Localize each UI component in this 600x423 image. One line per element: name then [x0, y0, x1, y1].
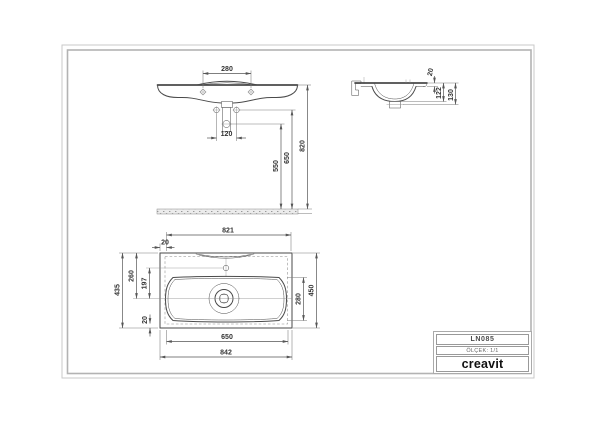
dim-label-550: 550 — [273, 160, 280, 172]
dim-plan-front-overhang: 20 — [142, 315, 150, 337]
dim-front-heights: 550 650 820 — [231, 85, 311, 209]
dim-label-130: 130 — [448, 89, 455, 101]
dim-plan-right-depth: 450 — [293, 253, 320, 328]
floor-hatch — [157, 209, 312, 214]
dim-label-20-bottom: 20 — [142, 316, 149, 324]
dim-label-280-front: 280 — [221, 66, 233, 73]
dim-label-435: 435 — [115, 284, 122, 296]
side-view: 20 122 130 — [352, 68, 459, 108]
dim-label-820: 820 — [300, 140, 307, 152]
technical-drawing-page: 280 120 550 650 820 — [0, 0, 600, 423]
dim-plan-basin-width: 650 — [167, 330, 289, 345]
title-block: LN085 ÖLÇEK: 1/1 creavit — [433, 331, 532, 374]
dim-label-450: 450 — [309, 285, 316, 297]
dim-plan-inner-width: 821 — [167, 228, 292, 252]
dim-label-20-top: 20 — [161, 240, 169, 247]
dim-plan-faucet-to-drain: 197 — [142, 268, 150, 299]
dim-plan-basin-depth: 280 — [287, 278, 307, 321]
dim-label-650-plan: 650 — [221, 334, 233, 341]
brand-logo: creavit — [436, 356, 529, 372]
mounting-holes — [200, 89, 255, 96]
dim-label-842: 842 — [220, 350, 232, 357]
dim-label-197: 197 — [142, 278, 149, 290]
scale-label: ÖLÇEK: 1/1 — [436, 346, 529, 355]
dim-label-122: 122 — [436, 87, 443, 99]
drain-trap — [213, 102, 241, 132]
front-view: 280 120 550 650 820 — [157, 66, 312, 214]
dim-label-20-side: 20 — [427, 68, 435, 77]
dim-label-120: 120 — [221, 131, 233, 138]
plan-view: 821 20 435 260 197 20 — [115, 228, 321, 361]
dim-label-650-front: 650 — [284, 152, 291, 164]
dim-plan-back-to-center: 260 — [129, 253, 137, 299]
basin-outline — [166, 276, 287, 322]
dim-label-821: 821 — [222, 228, 234, 235]
dim-plan-left-overhang: 20 — [152, 240, 175, 252]
dim-label-280-plan: 280 — [296, 293, 303, 305]
model-code: LN085 — [436, 334, 529, 345]
dim-label-260: 260 — [129, 270, 136, 282]
